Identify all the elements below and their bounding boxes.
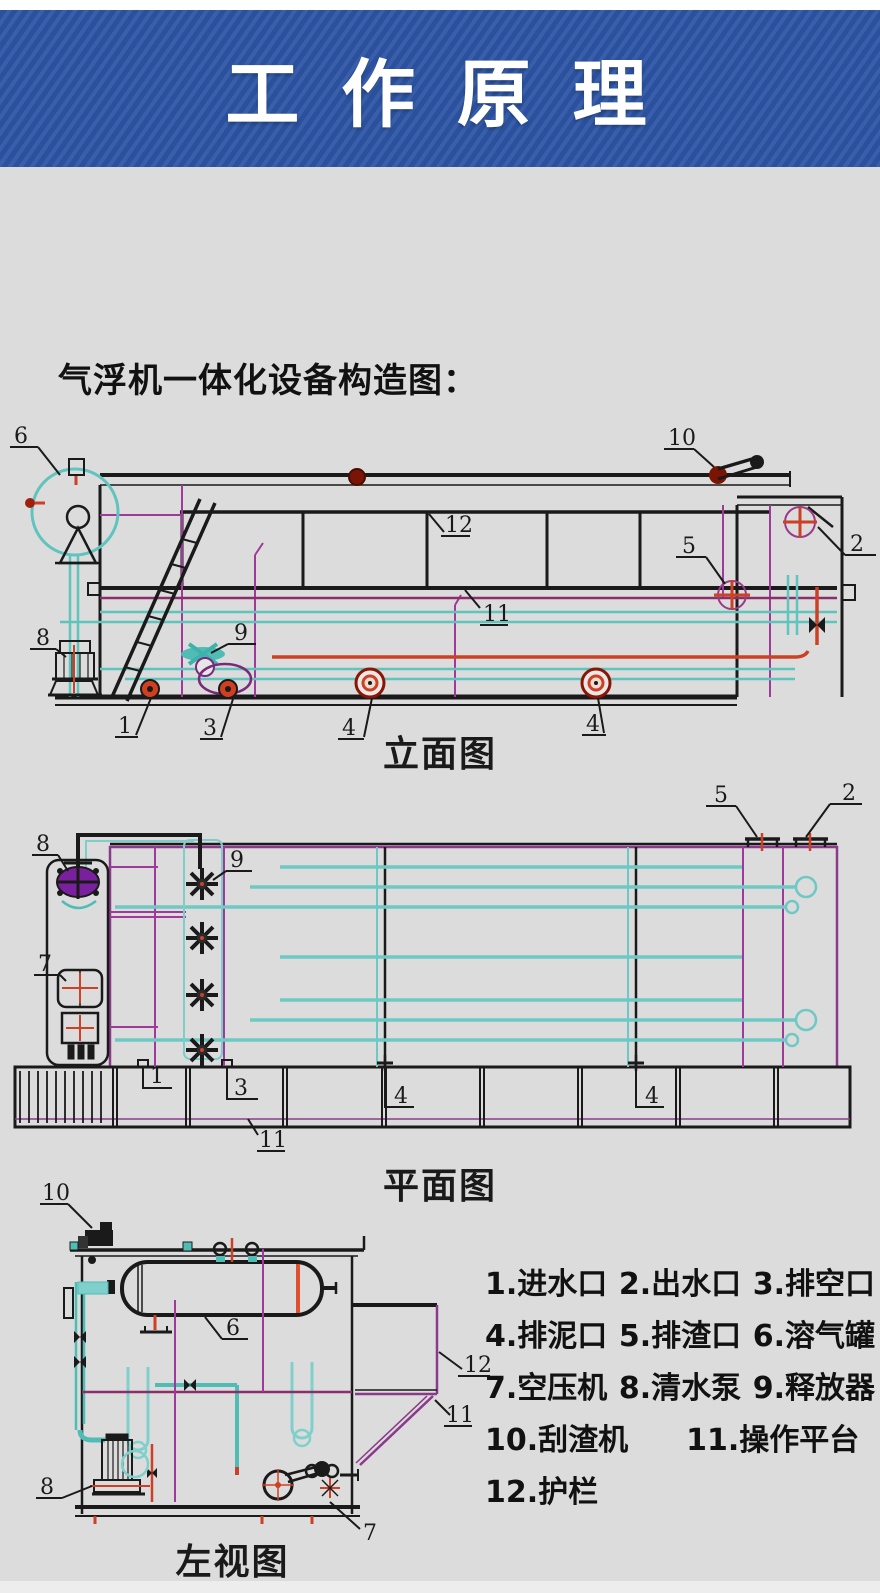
- callout-12: 12: [445, 513, 473, 538]
- callout-10: 10: [668, 426, 696, 451]
- callout-4b: 4: [586, 712, 600, 737]
- legend-item: 10.刮渣机: [485, 1415, 628, 1459]
- parts-legend: 1.进水口 2.出水口 3.排空口 4.排泥口 5.排渣口 6.溶气罐 7.空压…: [485, 1259, 875, 1519]
- top-white-strip: [0, 0, 880, 10]
- callout-8: 8: [36, 626, 50, 651]
- section-title: 气浮机一体化设备构造图：: [58, 353, 478, 402]
- callout-2: 2: [850, 532, 864, 557]
- clean-water-pump-plan: [57, 863, 99, 908]
- legend-item: 2.出水口: [619, 1259, 741, 1303]
- callout-2: 2: [842, 781, 856, 806]
- callout-11: 11: [259, 1128, 287, 1153]
- callout-3: 3: [234, 1076, 248, 1101]
- elevation-caption: 立面图: [330, 725, 550, 777]
- callout-11: 11: [446, 1403, 474, 1428]
- legend-row: 4.排泥口 5.排渣口 6.溶气罐: [485, 1311, 875, 1363]
- left-view-caption: 左视图: [125, 1533, 340, 1585]
- callout-5: 5: [714, 783, 728, 808]
- legend-item: 7.空压机: [485, 1363, 607, 1407]
- callout-5: 5: [682, 534, 696, 559]
- legend-item: 9.释放器: [753, 1363, 875, 1407]
- legend-item: 1.进水口: [485, 1259, 607, 1303]
- callout-9: 9: [234, 621, 248, 646]
- content-area: 气浮机一体化设备构造图：: [0, 167, 880, 1581]
- legend-row: 10.刮渣机 11.操作平台: [485, 1415, 875, 1467]
- title-banner: 工 作 原 理: [0, 10, 880, 167]
- collector-pipes: [115, 867, 816, 1046]
- legend-row: 7.空压机 8.清水泵 9.释放器: [485, 1363, 875, 1415]
- callout-4b: 4: [645, 1084, 659, 1109]
- elevation-diagram: 6 10 12 2 5 11 9 8 1 3 4 4: [0, 405, 880, 740]
- callout-10: 10: [42, 1181, 70, 1206]
- legend-row: 1.进水口 2.出水口 3.排空口: [485, 1259, 875, 1311]
- callout-9: 9: [230, 848, 244, 873]
- legend-item: 11.操作平台: [686, 1415, 859, 1459]
- callout-3: 3: [203, 716, 217, 740]
- plan-diagram: 8 9 7 5 2 1 3 4 4 11: [0, 775, 880, 1157]
- air-compressor-side: [262, 1461, 358, 1501]
- legend-item: 12.护栏: [485, 1467, 598, 1511]
- scum-scraper: [349, 455, 764, 485]
- outlet-valve: [783, 507, 817, 537]
- callout-6: 6: [226, 1316, 240, 1341]
- callout-7: 7: [363, 1521, 377, 1544]
- legend-item: 5.排渣口: [619, 1311, 741, 1355]
- callout-8: 8: [36, 832, 50, 857]
- page-title: 工 作 原 理: [225, 35, 654, 142]
- callout-11: 11: [483, 602, 511, 627]
- dissolved-air-tank-side: [107, 1262, 336, 1332]
- legend-item: 8.清水泵: [619, 1363, 741, 1407]
- legend-row: 12.护栏: [485, 1467, 875, 1519]
- air-compressor-plan: [58, 970, 102, 1059]
- scum-valve: [714, 580, 750, 610]
- callout-1: 1: [118, 714, 132, 739]
- callout-8: 8: [40, 1475, 54, 1500]
- legend-item: 3.排空口: [753, 1259, 875, 1303]
- callout-4a: 4: [394, 1084, 408, 1109]
- left-view-diagram: 10 6 12 11 8 7: [0, 1172, 500, 1544]
- callout-1: 1: [150, 1064, 164, 1089]
- releaser-column: [186, 868, 218, 1066]
- legend-item: 4.排泥口: [485, 1311, 607, 1355]
- legend-item: 6.溶气罐: [753, 1311, 875, 1355]
- top-flanges: [745, 833, 828, 851]
- scum-chute: [352, 1305, 437, 1465]
- callout-6: 6: [14, 424, 28, 449]
- callout-7: 7: [38, 952, 52, 977]
- page: 工 作 原 理 气浮机一体化设备构造图：: [0, 0, 880, 1593]
- bottom-strip: [0, 1581, 880, 1593]
